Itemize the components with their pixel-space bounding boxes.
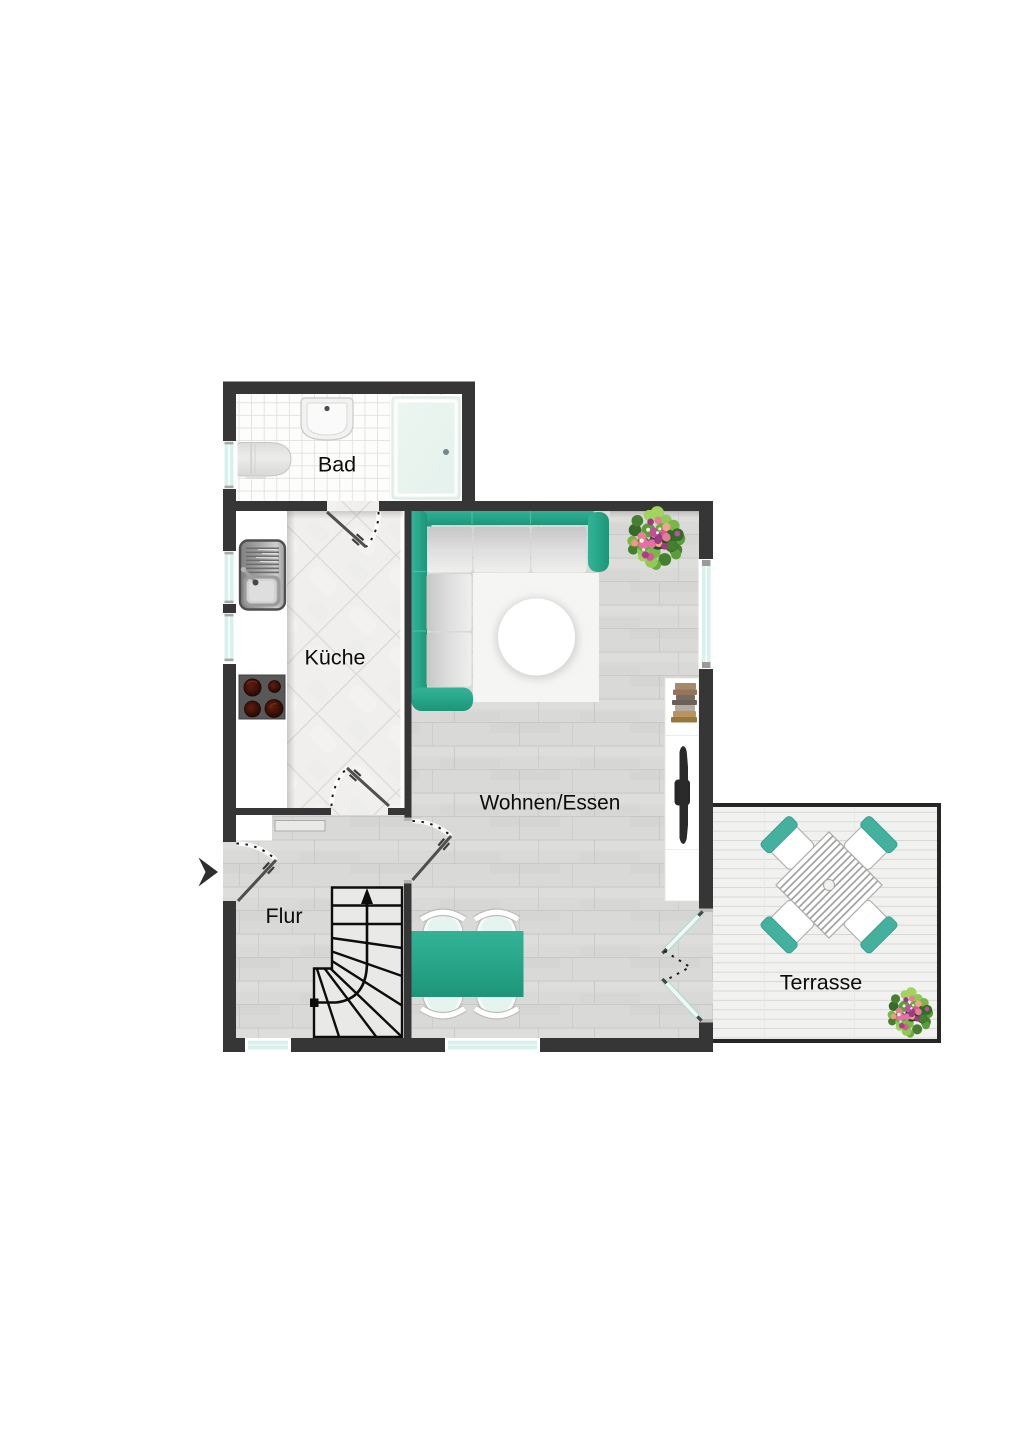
- svg-text:Küche: Küche: [305, 646, 366, 670]
- svg-text:Wohnen/Essen: Wohnen/Essen: [480, 792, 621, 815]
- svg-text:Bad: Bad: [318, 453, 356, 477]
- svg-text:Flur: Flur: [265, 904, 302, 928]
- svg-text:Terrasse: Terrasse: [780, 971, 862, 995]
